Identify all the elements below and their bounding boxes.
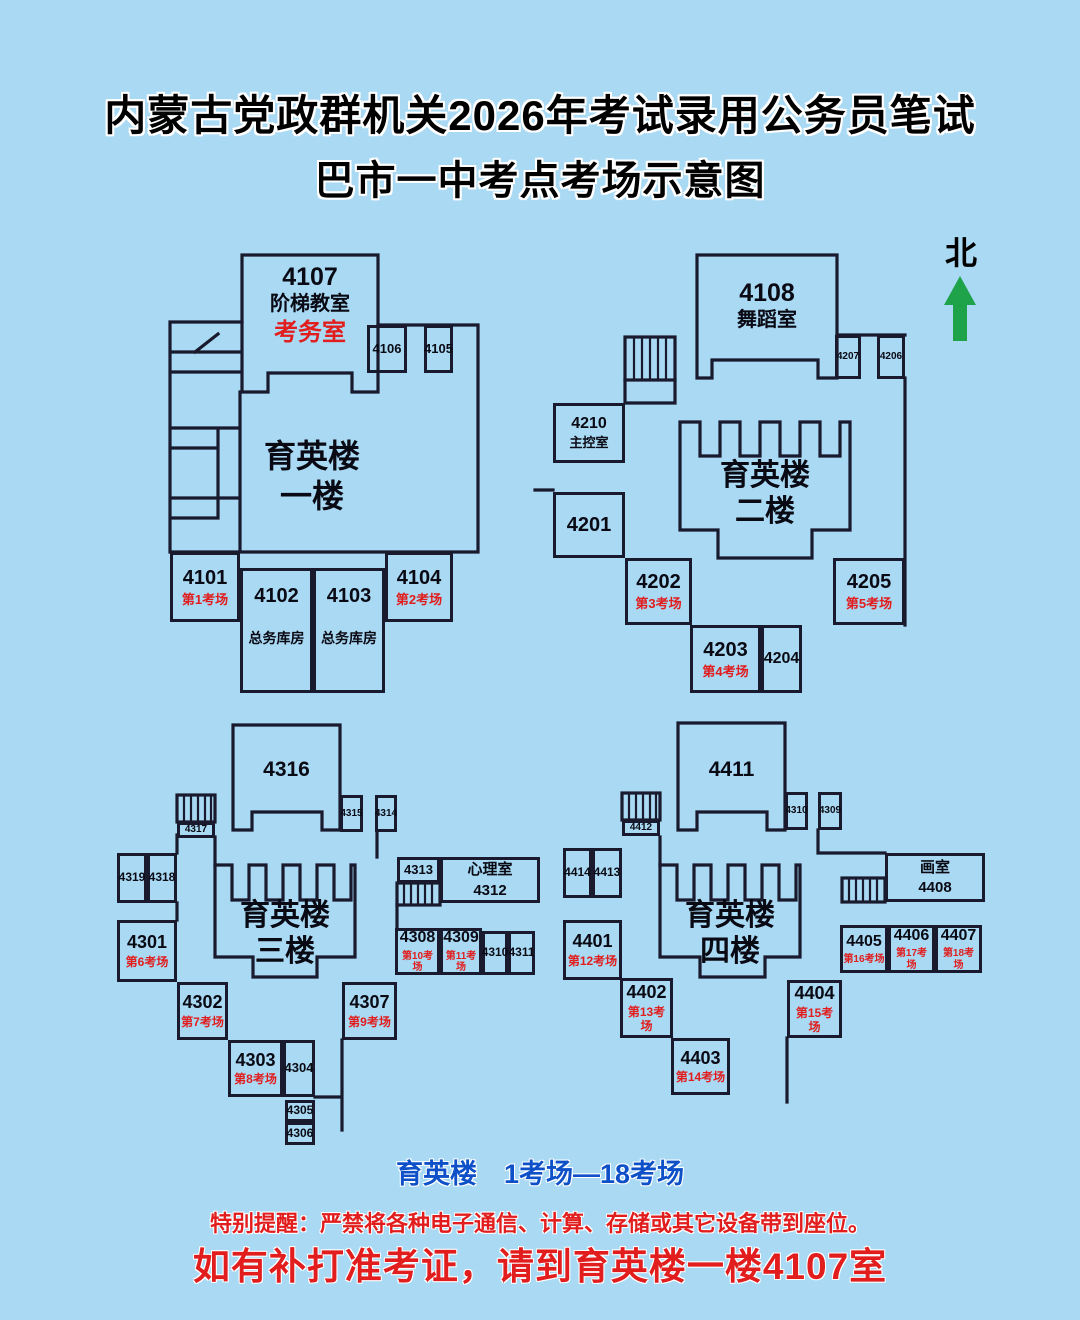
room-4308: 4308 第10考场 [395,928,440,975]
room-4413: 4413 [592,848,622,898]
room-number: 4406 [894,927,930,945]
floor-name: 一楼 [280,476,344,516]
room-name: 心理室 [467,861,512,878]
building-name: 育英楼 [264,436,360,476]
room-4202: 4202 第3考场 [625,558,692,625]
room-exam-label: 第11考场 [443,951,479,974]
room-4203: 4203 第4考场 [690,625,761,693]
room-4411: 4411 [678,758,785,782]
room-number: 4207 [837,351,859,363]
room-4310: 4310 [482,931,508,975]
floor-name: 四楼 [700,934,760,970]
room-number: 4402 [626,982,666,1003]
room-4210: 4210 主控室 [553,403,625,463]
floor-name: 二楼 [735,494,795,530]
room-number: 4201 [567,514,612,537]
room-number: 4204 [764,650,800,668]
room-4402: 4402 第13考场 [620,978,673,1038]
room-number: 4304 [285,1061,314,1076]
room-number: 4305 [287,1104,314,1118]
floor-name: 三楼 [255,934,315,970]
room-4319: 4319 [117,853,147,903]
legend-rooms-range: 育英楼 1考场—18考场 [0,1152,1080,1191]
room-number: 4101 [183,567,228,590]
room-number: 4202 [636,571,681,594]
room-exam-label: 第9考场 [348,1016,391,1030]
room-4306: 4306 [285,1122,315,1145]
exam-venue-diagram: 内蒙古党政群机关2026年考试录用公务员笔试 巴市一中考点考场示意图 [0,0,1080,1320]
room-exam-label: 第13考场 [623,1006,670,1034]
room-4103: 4103 总务库房 [313,568,385,693]
room-number: 4306 [287,1127,314,1141]
floor3-hall-label: 育英楼 三楼 [213,898,357,970]
room-4206: 4206 [877,335,905,379]
room-4207: 4207 [835,335,861,379]
room-number: 4309 [819,805,841,817]
room-number: 4310 [785,805,807,817]
room-4108: 4108 舞蹈室 [697,278,837,333]
room-exam-label: 第14考场 [676,1071,725,1085]
room-number: 4405 [846,933,882,951]
room-4310-f4: 4310 [785,792,808,830]
room-number: 4315 [340,808,362,820]
room-4303: 4303 第8考场 [228,1040,283,1097]
north-arrow-icon [944,276,976,341]
room-4404: 4404 第15考场 [787,980,842,1038]
room-number: 4318 [149,871,176,885]
exam-office-label: 考务室 [274,317,346,349]
room-4312: 心理室 4312 [440,857,540,903]
room-number: 4312 [473,882,506,899]
room-name: 总务库房 [321,630,377,646]
room-4204: 4204 [761,625,802,693]
room-number: 4412 [630,822,652,834]
room-exam-label: 第3考场 [635,597,681,612]
room-4318: 4318 [147,853,177,903]
room-4403: 4403 第14考场 [671,1038,730,1095]
room-number: 4309 [443,929,479,947]
room-number: 4108 [739,278,795,308]
room-exam-label: 第2考场 [396,593,442,608]
room-4107: 4107 阶梯教室 考务室 [242,262,378,349]
room-4304: 4304 [283,1040,315,1097]
room-number: 4311 [508,946,534,960]
room-exam-label: 第18考场 [938,948,979,971]
room-number: 4407 [941,927,977,945]
floor4-hall-label: 育英楼 四楼 [658,898,802,970]
room-number: 4319 [119,871,146,885]
room-number: 4404 [794,983,834,1004]
room-number: 4205 [847,571,892,594]
room-number: 4206 [880,351,902,363]
room-number: 4106 [373,342,402,357]
room-exam-label: 第7考场 [181,1016,224,1030]
room-name: 主控室 [569,436,608,451]
room-4301: 4301 第6考场 [117,920,177,982]
room-exam-label: 第12考场 [568,955,617,969]
room-4412: 4412 [622,820,660,836]
room-number: 4317 [185,824,207,836]
room-4313: 4313 [397,857,440,883]
stairs-icon [622,793,660,820]
room-number: 4303 [235,1050,275,1071]
room-number: 4301 [127,932,167,953]
building-name: 育英楼 [720,458,810,494]
room-4309-f4: 4309 [818,792,842,830]
building-name: 育英楼 [240,898,330,934]
room-number: 4308 [400,929,436,947]
room-number: 4403 [680,1048,720,1069]
room-4408: 画室 4408 [885,853,985,902]
room-exam-label: 第5考场 [846,597,892,612]
stairs-icon [177,795,215,822]
room-exam-label: 第15考场 [790,1007,839,1035]
room-exam-label: 第4考场 [702,665,748,680]
room-name: 阶梯教室 [270,292,350,317]
room-number: 4203 [703,639,748,662]
room-name: 画室 [920,859,950,876]
north-label: 北 [935,228,987,274]
room-number: 4413 [594,866,621,880]
room-4205: 4205 第5考场 [833,558,905,625]
room-number: 4314 [375,808,397,820]
room-4311: 4311 [508,931,535,975]
room-4414: 4414 [563,848,592,898]
room-4309: 4309 第11考场 [440,928,482,975]
room-number: 4103 [327,585,372,608]
room-exam-label: 第16考场 [843,954,884,966]
room-number: 4210 [571,415,607,433]
room-name: 舞蹈室 [737,308,797,333]
room-number: 4104 [397,567,442,590]
room-number: 4401 [572,931,612,952]
room-4314: 4314 [375,795,397,832]
room-4201: 4201 [553,492,625,558]
room-4302: 4302 第7考场 [177,982,228,1040]
room-number: 4411 [709,758,755,782]
room-4317: 4317 [177,822,215,838]
notice-reprint: 如有补打准考证，请到育英楼一楼4107室 [0,1236,1080,1290]
room-4307: 4307 第9考场 [342,982,397,1040]
floor1-hall-label: 育英楼 一楼 [240,436,384,516]
room-4407: 4407 第18考场 [935,925,982,973]
room-4316: 4316 [233,758,340,782]
room-4106: 4106 [367,325,407,373]
room-number: 4105 [424,342,453,357]
room-number: 4302 [182,992,222,1013]
room-number: 4310 [482,946,509,960]
room-exam-label: 第17考场 [891,948,932,971]
room-4315: 4315 [340,795,363,832]
room-4102: 4102 总务库房 [240,568,313,693]
room-exam-label: 第8考场 [234,1073,277,1087]
room-number: 4102 [254,585,299,608]
room-exam-label: 第10考场 [398,951,437,974]
room-4105: 4105 [424,325,453,373]
room-4406: 4406 第17考场 [888,925,935,973]
room-4101: 4101 第1考场 [170,552,240,622]
room-4401: 4401 第12考场 [563,920,622,980]
room-4104: 4104 第2考场 [385,552,453,622]
notice-warning: 特别提醒：严禁将各种电子通信、计算、存储或其它设备带到座位。 [0,1206,1080,1238]
room-4305: 4305 [285,1100,315,1122]
room-number: 4307 [349,992,389,1013]
floor2-hall-label: 育英楼 二楼 [693,458,837,530]
room-number: 4408 [918,879,951,896]
room-number: 4107 [282,262,338,292]
room-number: 4313 [404,863,433,878]
room-number: 4316 [263,758,310,782]
room-name: 总务库房 [249,630,305,646]
building-name: 育英楼 [685,898,775,934]
room-exam-label: 第1考场 [182,593,228,608]
room-exam-label: 第6考场 [126,956,169,970]
room-4405: 4405 第16考场 [840,925,888,973]
floorplan-walls [0,0,1080,1320]
room-number: 4414 [564,866,591,880]
